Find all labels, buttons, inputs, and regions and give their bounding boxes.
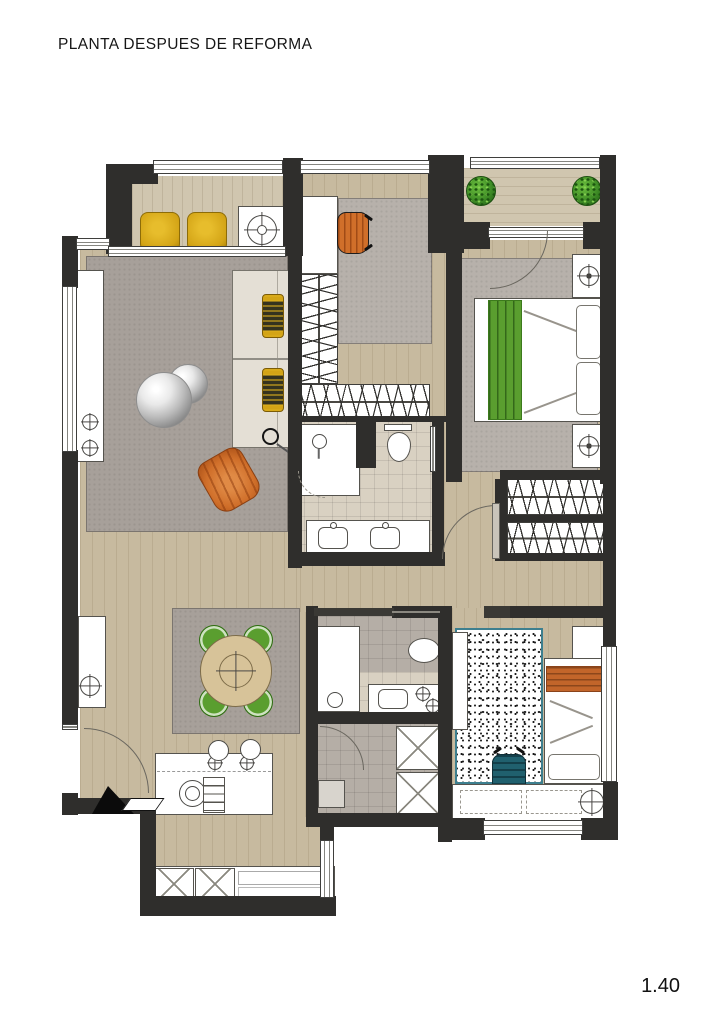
wall xyxy=(446,242,462,482)
window xyxy=(62,286,77,452)
bath1-pocket-door xyxy=(430,426,436,472)
wall xyxy=(306,606,318,816)
shower-head-stem xyxy=(318,449,320,459)
sliding-glass-door xyxy=(108,246,286,257)
desk-lamp-icon xyxy=(580,790,604,814)
bed-green-runner xyxy=(488,300,522,420)
wall xyxy=(62,450,78,730)
window xyxy=(153,160,283,174)
faucet-icon xyxy=(382,522,389,529)
bed-pillow xyxy=(576,362,601,415)
balcony-railing xyxy=(470,157,600,169)
counter-edge xyxy=(157,771,271,772)
shower-head-icon xyxy=(312,434,327,449)
nightstand-lamp-icon xyxy=(579,266,599,286)
wall xyxy=(296,416,446,422)
wall xyxy=(581,818,618,840)
wall xyxy=(495,553,608,561)
wall xyxy=(306,712,452,724)
faucet-icon xyxy=(330,522,337,529)
shower-head-icon xyxy=(327,692,343,708)
wall xyxy=(603,482,616,646)
wall xyxy=(320,815,334,841)
wall xyxy=(288,552,445,566)
tap-crosshair-icon xyxy=(416,687,430,701)
floor-drain-tray xyxy=(318,780,345,808)
wall xyxy=(356,418,376,468)
table-center xyxy=(257,225,267,235)
stove-burner-inner xyxy=(185,786,200,801)
page-title: PLANTA DESPUES DE REFORMA xyxy=(58,36,312,54)
bar-stool xyxy=(240,739,261,760)
master-door-leaf xyxy=(492,503,500,559)
wardrobe-hangers-bottom xyxy=(507,522,607,555)
bed-pillow xyxy=(576,305,601,359)
floor-plan-page: PLANTA DESPUES DE REFORMA 1.40 xyxy=(0,0,724,1024)
sink xyxy=(370,527,400,549)
sink xyxy=(378,689,408,709)
counter-appliance xyxy=(238,871,331,885)
bed-orange-band xyxy=(546,666,603,692)
wall xyxy=(140,896,336,916)
toilet-tank xyxy=(384,424,412,431)
decor-crosshair-icon xyxy=(82,414,98,430)
closet-hangers-vertical xyxy=(300,274,338,384)
wall xyxy=(438,606,452,842)
balcony-plant xyxy=(466,176,496,206)
table-crosshair-icon xyxy=(219,654,253,688)
decor-crosshair-icon xyxy=(82,440,98,456)
sofa-pillow xyxy=(262,368,284,412)
wall xyxy=(600,155,616,225)
wall xyxy=(438,818,485,840)
window xyxy=(483,820,583,835)
wardrobe-hangers-top xyxy=(507,479,607,515)
sofa-pillow xyxy=(262,294,284,338)
decor-crosshair-icon xyxy=(80,676,100,696)
bath2-door-guide xyxy=(392,611,440,613)
closet-hangers-horizontal xyxy=(300,384,430,420)
entrance-arrow-tail xyxy=(121,798,164,811)
laundry-cabinet xyxy=(396,772,440,815)
window xyxy=(300,160,430,174)
window xyxy=(320,840,334,898)
wall xyxy=(600,222,616,484)
oven-grill xyxy=(203,777,225,813)
shelf-unit xyxy=(452,632,468,730)
scale-label: 1.40 xyxy=(560,975,680,998)
tv-sideboard xyxy=(76,270,104,462)
pouf-sphere-large xyxy=(136,372,192,428)
entrance-arrow xyxy=(88,784,168,820)
desk-surface xyxy=(460,790,522,814)
bed-pillow xyxy=(548,754,600,780)
toilet-bowl-2 xyxy=(408,638,440,663)
bar-stool xyxy=(208,740,229,761)
nightstand-lamp-icon xyxy=(579,436,599,456)
bedroom2-door-leaf xyxy=(484,606,510,618)
window xyxy=(76,238,110,250)
bath2-sliding-door xyxy=(314,608,394,616)
wall xyxy=(500,470,607,480)
wall xyxy=(495,515,608,522)
balcony-plant xyxy=(572,176,602,206)
office-desk xyxy=(300,196,338,274)
sink xyxy=(318,527,348,549)
desk-surface xyxy=(526,790,582,814)
wall xyxy=(288,252,302,568)
door-frame-mark xyxy=(62,724,78,730)
window xyxy=(601,646,617,782)
laundry-cabinet xyxy=(396,726,440,770)
